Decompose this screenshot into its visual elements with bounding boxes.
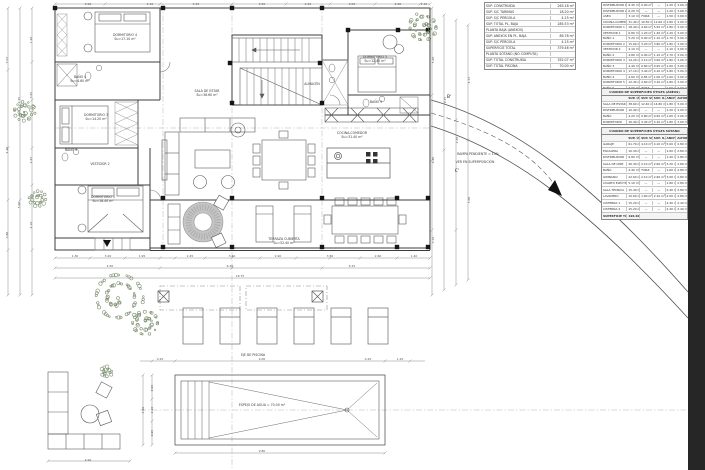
table-cell: 4.10 m²: [653, 69, 666, 73]
table-cell: 3.00 m: [676, 31, 687, 35]
table-cell: 16.40 m²: [627, 120, 640, 124]
table-cell: 0.80 m²: [640, 114, 653, 118]
table-cell: —: [653, 3, 666, 7]
table-cell: 4.60 m²: [640, 25, 653, 29]
table-cell: 61.70 m²: [627, 142, 640, 146]
table-cell: 3.00 m: [676, 64, 687, 68]
table-cell: DISTRIBUIDOR 1: [602, 3, 627, 7]
table-cell: 3.00 m: [676, 47, 687, 51]
table-cell: 3.00 m: [676, 25, 687, 29]
bed-dormitorio-5: [358, 35, 404, 92]
table-cell: —: [653, 14, 666, 18]
table-cell: 1.80 m: [666, 102, 677, 106]
table-cell: CISTERNA 2: [602, 207, 627, 211]
table-cell: 196.60 m²: [627, 214, 640, 218]
table-cell: 1.80 m: [666, 20, 677, 24]
table-cell: 1.20 m: [666, 108, 677, 112]
dimension-chains: [7, 3, 470, 463]
table-cell: 10.30 m²: [627, 149, 640, 153]
bed-dormitorio-4: [84, 12, 150, 52]
table-cell: SUPERFICIE TOTAL: [602, 214, 627, 218]
table-cell: 2.80 m: [676, 142, 687, 146]
table-cell: 3.00 m: [676, 75, 687, 79]
table-cell: 3.10 m²: [627, 14, 640, 18]
table-cell: ANCHO: [666, 96, 677, 100]
table-cell: 2.60 m²: [640, 80, 653, 84]
table-cell: 3.60 m²: [653, 58, 666, 62]
table-cell: 0.95 m²: [653, 64, 666, 68]
table-cell: 1.10 m²: [653, 36, 666, 40]
table-cell: VESTIDOR 1: [602, 31, 627, 35]
table-cell: ANCHO: [666, 136, 677, 140]
table-cell: 0.80 m²: [640, 64, 653, 68]
table-cell: 0.95 m²: [653, 114, 666, 118]
table-cell: SALA DE CINE: [602, 162, 627, 166]
table-cell: —: [640, 9, 653, 13]
table-cell: 18.20 m²: [551, 10, 575, 14]
table-cell: 1.40 m: [666, 155, 677, 159]
table-title: CUADRO DE SUPERFICIES ÚTILES (ÁREAS): [602, 89, 687, 96]
table-cell: 4.40 m²: [627, 168, 640, 172]
table-cell: GIMNASIO: [602, 175, 627, 179]
table-cell: 4.60 m²: [627, 75, 640, 79]
table-cell: 10.50 m²: [640, 20, 653, 24]
table-cell: 1.80 m: [666, 25, 677, 29]
table-cell: 4.10 m²: [640, 142, 653, 146]
table-cell: —: [640, 47, 653, 51]
table-cell: 4.80 m²: [627, 53, 640, 57]
table-cell: 1.50 m: [666, 14, 677, 18]
table-row: DORMITORIO16.40 m²3.40 m²4.10 m²1.80 m3.…: [602, 120, 687, 125]
table-cell: 5.20 m²: [627, 36, 640, 40]
table-cell: 12.40 m²: [627, 80, 640, 84]
table-cell: SUP. VENT.: [640, 96, 653, 100]
table-row: SUP. TOTAL PISCINA70.00 m²: [485, 64, 575, 69]
canvas-dark-edge: [688, 0, 705, 470]
table-cell: DORMITORIO 4: [602, 69, 627, 73]
table-cell: 3.00 m: [676, 120, 687, 124]
table-cell: SUP. CONSTRUIDA: [485, 4, 551, 8]
table-cell: 3.00 m: [676, 14, 687, 18]
table-cell: 31.40 m²: [627, 20, 640, 24]
table-cell: 2.40 m: [666, 188, 677, 192]
table-cell: DORMITORIO 3: [602, 58, 627, 62]
walls: [55, 8, 430, 251]
terrace-loungers: [256, 206, 311, 242]
table-cell: 4.20 m²: [627, 114, 640, 118]
table-cell: SUP. TOTAL PISCINA: [485, 64, 551, 68]
table-cell: GARAJE: [602, 142, 627, 146]
table-cell: —: [653, 149, 666, 153]
table-cell: 2.00 m: [666, 194, 677, 198]
table-cell: 3.20 m: [666, 162, 677, 166]
table-cell: 3.00 m: [676, 80, 687, 84]
ramp-direction-arrow: [548, 180, 562, 196]
table-cell: —: [640, 108, 653, 112]
table-cell: 1.60 m: [666, 114, 677, 118]
table-cell: 1.00 m²: [653, 75, 666, 79]
table-cell: 2.10 m²: [640, 162, 653, 166]
table-cell: 1.10 m: [666, 47, 677, 51]
table-cell: 38.60 m²: [627, 102, 640, 106]
table-cell: —: [640, 149, 653, 153]
table-cell: 10.60 m²: [627, 194, 640, 198]
table-cell: 10.40 m²: [627, 108, 640, 112]
table-cell: 2.60 m²: [653, 162, 666, 166]
table-cell: 15.40 m²: [627, 188, 640, 192]
table-cell: DORMITORIO 1: [602, 25, 627, 29]
closets: [57, 14, 138, 145]
cooktop: [366, 152, 378, 164]
table-row: SUPERFICIE TOTAL196.60 m²: [602, 213, 687, 219]
table-cell: ASEO: [602, 14, 627, 18]
usable-areas-table: DISTRIBUIDOR 18.45 m²0.00 m²—1.20 m3.00 …: [601, 2, 688, 97]
table-cell: 2.10 m²: [653, 194, 666, 198]
table-cell: 3.10 m²: [640, 58, 653, 62]
bed-dormitorio-1: [78, 186, 143, 232]
table-cell: 0.85 m²: [640, 75, 653, 79]
table-cell: BAÑO 3: [602, 64, 627, 68]
table-cell: 3.40 m²: [640, 120, 653, 124]
table-cell: 2.60 m²: [653, 175, 666, 179]
table-cell: SUP. S/C PÉRGOLA: [485, 16, 551, 20]
table-cell: 1.70 m: [666, 36, 677, 40]
table-cell: 26.30 m²: [627, 162, 640, 166]
table-cell: FORZ.: [640, 14, 653, 18]
table-cell: SUP. ANEXOS EN PL. BAJA: [485, 34, 551, 38]
table-cell: FORZ.: [640, 168, 653, 172]
table-cell: PLANTA BAJA (ANEXOS): [485, 28, 551, 32]
table-cell: 14.20 m²: [627, 58, 640, 62]
bed-dormitorio-3: [60, 106, 108, 144]
table-cell: 1.80 m: [666, 42, 677, 46]
table-cell: CISTERNA 1: [602, 201, 627, 205]
table-cell: 379.46 m²: [551, 46, 575, 50]
table-cell: 1.10 m²: [653, 53, 666, 57]
table-cell: SUP. VENT.: [640, 136, 653, 140]
table-cell: 2.80 m: [676, 168, 687, 172]
table-cell: 1.80 m: [666, 80, 677, 84]
table-cell: DORMITORIO: [602, 120, 627, 124]
outdoor-dining-set: [324, 198, 406, 243]
table-cell: 3.00 m: [676, 20, 687, 24]
table-cell: 15.20 m²: [627, 201, 640, 205]
table-title: CUADRO DE SUPERFICIES ÚTILES SÓTANO: [602, 128, 687, 135]
table-cell: 1.80 m: [666, 120, 677, 124]
table-cell: PLANTA SÓTANO (NO COMPUTA): [485, 52, 551, 56]
table-cell: 1.20 m: [666, 31, 677, 35]
table-cell: 22.60 m²: [627, 175, 640, 179]
table-cell: SUP. TOTAL CONSTRUIDA: [485, 58, 551, 62]
table-cell: 1.60 m²: [640, 194, 653, 198]
table-cell: —: [640, 207, 653, 211]
table-cell: BAÑO 2: [602, 53, 627, 57]
table-cell: 12.60 m²: [653, 20, 666, 24]
table-cell: VESTIDOR 2: [602, 47, 627, 51]
table-cell: CUARTO ELÉCTRICO: [602, 181, 627, 185]
table-cell: —: [653, 168, 666, 172]
table-cell: 0.00 m²: [640, 3, 653, 7]
table-cell: 14.80 m²: [653, 102, 666, 106]
table-cell: 1.20 m: [666, 3, 677, 7]
table-cell: 9.80 m²: [627, 155, 640, 159]
table-cell: 3.00 m: [666, 175, 677, 179]
table-cell: 3.00 m: [676, 108, 687, 112]
table-cell: 2.40 m: [676, 207, 687, 211]
table-cell: 3.00 m: [676, 36, 687, 40]
garden-lounge: [48, 372, 120, 449]
table-cell: 2.80 m: [676, 188, 687, 192]
table-cell: —: [653, 155, 666, 159]
table-cell: 6.20 m²: [627, 9, 640, 13]
table-cell: —: [640, 201, 653, 205]
table-cell: SUP. TOTAL PL. BAJA: [485, 22, 551, 26]
pergola-posts: [158, 291, 323, 302]
table-cell: 3.80 m²: [653, 42, 666, 46]
sofa-set: [162, 118, 255, 195]
structural-columns: [53, 6, 430, 249]
table-cell: 6.80 m²: [627, 31, 640, 35]
table-cell: COCINA-COMEDOR: [602, 20, 627, 24]
table-cell: 3.00 m: [676, 9, 687, 13]
table-cell: 2.40 m: [666, 201, 677, 205]
table-cell: DISTRIBUIDOR: [602, 108, 627, 112]
table-cell: SUP. ÚTIL: [627, 96, 640, 100]
table-cell: 1.80 m: [666, 58, 677, 62]
table-cell: 1.20 m: [666, 9, 677, 13]
table-cell: 3.20 m²: [640, 42, 653, 46]
table-cell: 15.20 m²: [627, 207, 640, 211]
table-cell: —: [653, 207, 666, 211]
table-cell: 2.10 m²: [640, 175, 653, 179]
table-cell: ESCALERA: [602, 149, 627, 153]
table-cell: 17.10 m²: [627, 69, 640, 73]
table-cell: DISTRIBUIDOR: [602, 155, 627, 159]
floor-plan-drawing: [0, 0, 705, 470]
table-cell: SUP. ILUM.: [653, 136, 666, 140]
table-cell: 263.18 m²: [551, 4, 575, 8]
table-cell: —: [653, 201, 666, 205]
table-cell: DISTRIBUIDOR 2: [602, 9, 627, 13]
table-cell: 3.00 m: [676, 58, 687, 62]
kitchen-island: [327, 148, 390, 178]
table-cell: 18.40 m²: [627, 25, 640, 29]
table-cell: 3.00 m: [676, 69, 687, 73]
table-cell: —: [640, 155, 653, 159]
table-cell: LAVADERO: [602, 194, 627, 198]
table-cell: —: [653, 108, 666, 112]
pergola: [160, 286, 327, 310]
table-cell: 2.40 m: [676, 201, 687, 205]
table-cell: 4.10 m²: [653, 142, 666, 146]
fire-pit-lounge: [168, 195, 229, 247]
table-cell: 1.20 m²: [640, 31, 653, 35]
table-cell: 3.00 m: [676, 42, 687, 46]
table-cell: 5.00 m: [666, 142, 677, 146]
table-cell: 70.00 m²: [551, 64, 575, 68]
table-cell: 89.78 m²: [551, 34, 575, 38]
bath-fixtures: [57, 64, 418, 161]
table-cell: 4.10 m²: [627, 47, 640, 51]
table-cell: 1.60 m: [666, 168, 677, 172]
table-cell: 12.40 m²: [640, 102, 653, 106]
surface-summary-table: SUP. CONSTRUIDA263.18 m²SUP. S/C TARIMAS…: [484, 2, 576, 70]
table-cell: 15.60 m²: [627, 42, 640, 46]
table-cell: 0.90 m²: [640, 36, 653, 40]
indoor-dining-set: [253, 131, 315, 189]
table-cell: SUP. ÚTIL: [627, 136, 640, 140]
table-cell: 5.10 m²: [627, 181, 640, 185]
table-cell: 1.40 m²: [653, 31, 666, 35]
table-cell: 2.80 m: [676, 162, 687, 166]
table-cell: 4.10 m²: [653, 120, 666, 124]
table-cell: —: [640, 188, 653, 192]
table-cell: 4.40 m²: [627, 64, 640, 68]
table-cell: SUP. S/C TARIMAS: [485, 10, 551, 14]
table-cell: 2.40 m: [666, 207, 677, 211]
table-cell: —: [653, 47, 666, 51]
table-cell: ALTURA: [676, 136, 687, 140]
table-cell: 2.80 m: [676, 175, 687, 179]
table-cell: 3.00 m: [676, 114, 687, 118]
areas-annex-table: CUADRO DE SUPERFICIES ÚTILES (ÁREAS) SUP…: [601, 88, 688, 125]
table-cell: 285.53 m²: [551, 22, 575, 26]
table-cell: DORMITORIO 2: [602, 42, 627, 46]
table-cell: 1.80 m: [666, 69, 677, 73]
table-cell: 4.15 m²: [551, 16, 575, 20]
table-cell: SALA DE ESTAR: [602, 102, 627, 106]
table-cell: —: [640, 181, 653, 185]
table-cell: 3.10 m²: [653, 80, 666, 84]
table-cell: —: [653, 181, 666, 185]
table-cell: SUP. S/C PÉRGOLA: [485, 40, 551, 44]
table-cell: —: [653, 9, 666, 13]
table-cell: BAÑO 4: [602, 75, 627, 79]
table-cell: 1.60 m: [666, 75, 677, 79]
table-cell: BAÑO: [602, 168, 627, 172]
basement-areas-table: CUADRO DE SUPERFICIES ÚTILES SÓTANO SUP.…: [601, 127, 688, 220]
table-cell: 4.15 m²: [551, 40, 575, 44]
table-cell: 2.80 m: [676, 155, 687, 159]
table-cell: 1.70 m: [666, 53, 677, 57]
table-cell: DORMITORIO 5: [602, 80, 627, 84]
table-cell: 3.00 m: [676, 53, 687, 57]
table-cell: 352.07 m²: [551, 58, 575, 62]
drawing-sheet: DORMITORIO 4Su=17.10 m²BAÑO 4Su=4.60 m²D…: [0, 0, 705, 470]
table-cell: 2.80 m: [676, 149, 687, 153]
table-cell: 1.80 m: [666, 181, 677, 185]
table-cell: ALTURA: [676, 96, 687, 100]
staircase: [232, 38, 322, 105]
table-cell: 3.00 m: [676, 3, 687, 7]
table-cell: 5.50 m²: [653, 25, 666, 29]
table-cell: 3.40 m²: [640, 69, 653, 73]
table-cell: SALA TÉCNICA: [602, 188, 627, 192]
table-cell: —: [653, 188, 666, 192]
table-cell: BAÑO 1: [602, 36, 627, 40]
table-cell: SUP. ILUM.: [653, 96, 666, 100]
table-cell: SUPERFICIE TOTAL: [485, 46, 551, 50]
table-cell: 2.80 m: [676, 181, 687, 185]
pool-loungers: [183, 308, 388, 344]
table-cell: BAÑO: [602, 114, 627, 118]
table-cell: 3.00 m: [676, 102, 687, 106]
table-cell: 8.45 m²: [627, 3, 640, 7]
table-cell: 1.00 m: [666, 149, 677, 153]
table-cell: 2.80 m: [676, 194, 687, 198]
table-cell: 1.60 m: [666, 64, 677, 68]
table-cell: 0.90 m²: [640, 53, 653, 57]
